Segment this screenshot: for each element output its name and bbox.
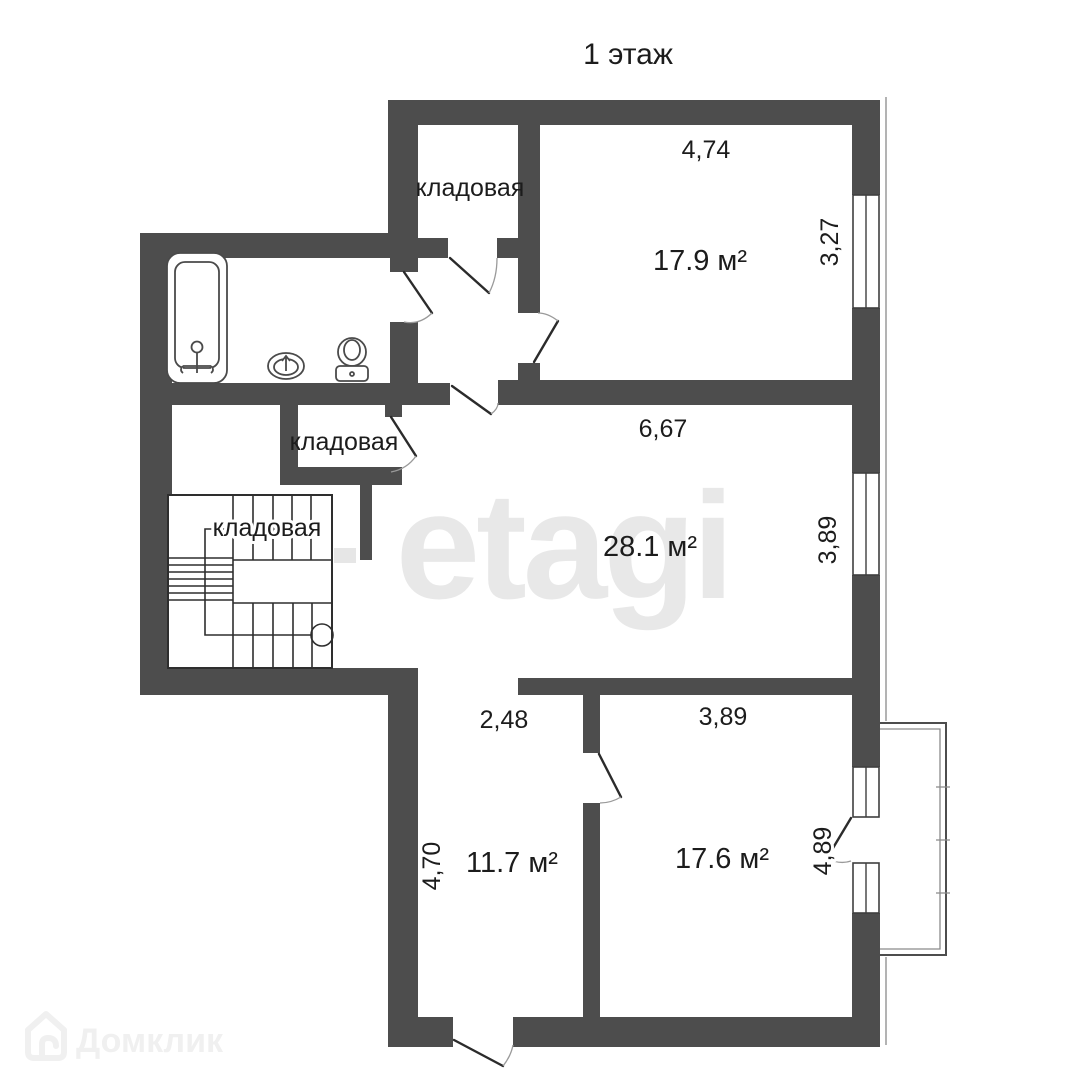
floor-plan-page: etagi [0, 0, 1080, 1080]
sink [268, 353, 304, 379]
bathtub [167, 253, 227, 383]
watermark-domclick-text: Домклик [76, 1022, 224, 1060]
watermark-domclick: Домклик [28, 1014, 224, 1060]
window-bedroom-top [853, 195, 879, 308]
door-bedroom-top [534, 313, 558, 362]
dim-room-bl-height: 4,70 [418, 842, 446, 891]
window-room-br-2 [853, 863, 879, 913]
dim-hall-width: 6,67 [639, 415, 688, 443]
dim-bedroom-top-width: 4,74 [682, 136, 731, 164]
dim-bedroom-top-height: 3,27 [816, 218, 844, 267]
doors [288, 258, 851, 1066]
dim-hall-height: 3,89 [814, 516, 842, 565]
plan-title: 1 этаж [583, 38, 673, 71]
label-storage-top: кладовая [416, 174, 525, 202]
door-storage-top [450, 258, 497, 293]
floor-plan-drawing: etagi [0, 0, 1080, 1080]
area-room-bl: 11.7 м² [466, 847, 558, 879]
door-room-divider [599, 754, 621, 803]
toilet [336, 338, 368, 381]
area-bedroom-top: 17.9 м² [653, 245, 747, 277]
bathroom-fixtures [167, 253, 368, 383]
domclick-house-icon [28, 1014, 64, 1058]
windows [853, 195, 879, 913]
dim-room-br-height: 4,89 [809, 827, 837, 876]
label-storage-under-stairs: кладовая [213, 514, 322, 542]
balcony [880, 723, 950, 955]
area-room-br: 17.6 м² [675, 843, 769, 875]
door-vestibule-hall [452, 386, 498, 414]
dim-room-bl-width: 2,48 [480, 706, 529, 734]
window-hall [853, 473, 879, 575]
dim-room-br-width: 3,89 [699, 703, 748, 731]
door-bathroom [404, 272, 432, 323]
label-storage-mid: кладовая [290, 428, 399, 456]
door-entry [454, 1040, 513, 1066]
window-room-br-1 [853, 767, 879, 817]
area-hall: 28.1 м² [603, 531, 697, 563]
